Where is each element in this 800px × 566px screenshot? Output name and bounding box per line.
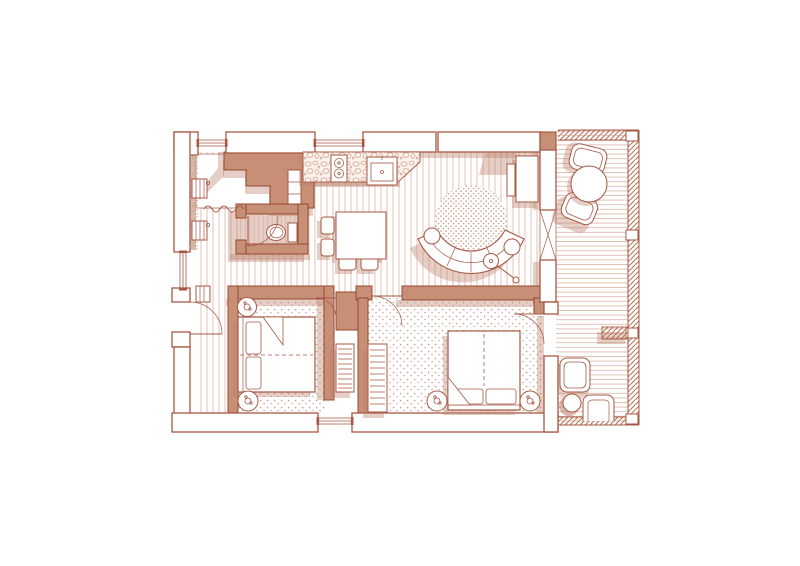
privacy-divider	[597, 327, 628, 344]
railing-post	[626, 131, 638, 141]
window-top-1	[197, 139, 228, 147]
railing-post	[626, 414, 638, 424]
bistro-table	[571, 166, 607, 202]
nightstand-2a	[427, 391, 447, 411]
double-bed-2	[448, 331, 520, 410]
slatted-radiator-recess	[330, 344, 354, 398]
sofa-side-table-right	[504, 239, 520, 255]
radiator-hall	[196, 286, 210, 302]
nightstand-1b	[238, 391, 258, 411]
tv	[507, 164, 515, 196]
window-top-2	[314, 139, 365, 147]
window-left	[179, 251, 187, 291]
railing-post	[626, 230, 638, 240]
lounge-chair-2	[583, 395, 614, 421]
floor-plan-drawing: Apartment floor plan — sienna ink line d…	[0, 0, 800, 566]
nightstand-1a	[238, 298, 257, 317]
sofa-side-table-left	[424, 228, 440, 244]
two-burner-stove	[331, 155, 347, 182]
toilet	[267, 223, 298, 242]
dining-chair-1	[321, 217, 334, 234]
double-bed-1	[238, 317, 315, 392]
balcony-side-table	[563, 394, 581, 412]
floor-plan-canvas: Apartment floor plan — sienna ink line d…	[0, 0, 800, 566]
lounge-chair-1	[560, 358, 590, 392]
window-bottom	[317, 417, 354, 425]
nightstand-2b	[520, 391, 540, 411]
kitchen-sink	[367, 156, 397, 185]
stone-countertop	[303, 152, 420, 182]
radiator-entry-1	[192, 179, 210, 198]
dining-chair-2	[321, 239, 334, 256]
dining-table	[336, 212, 386, 259]
slatted-wardrobe	[363, 344, 387, 418]
radiator-entry-2	[192, 221, 210, 240]
